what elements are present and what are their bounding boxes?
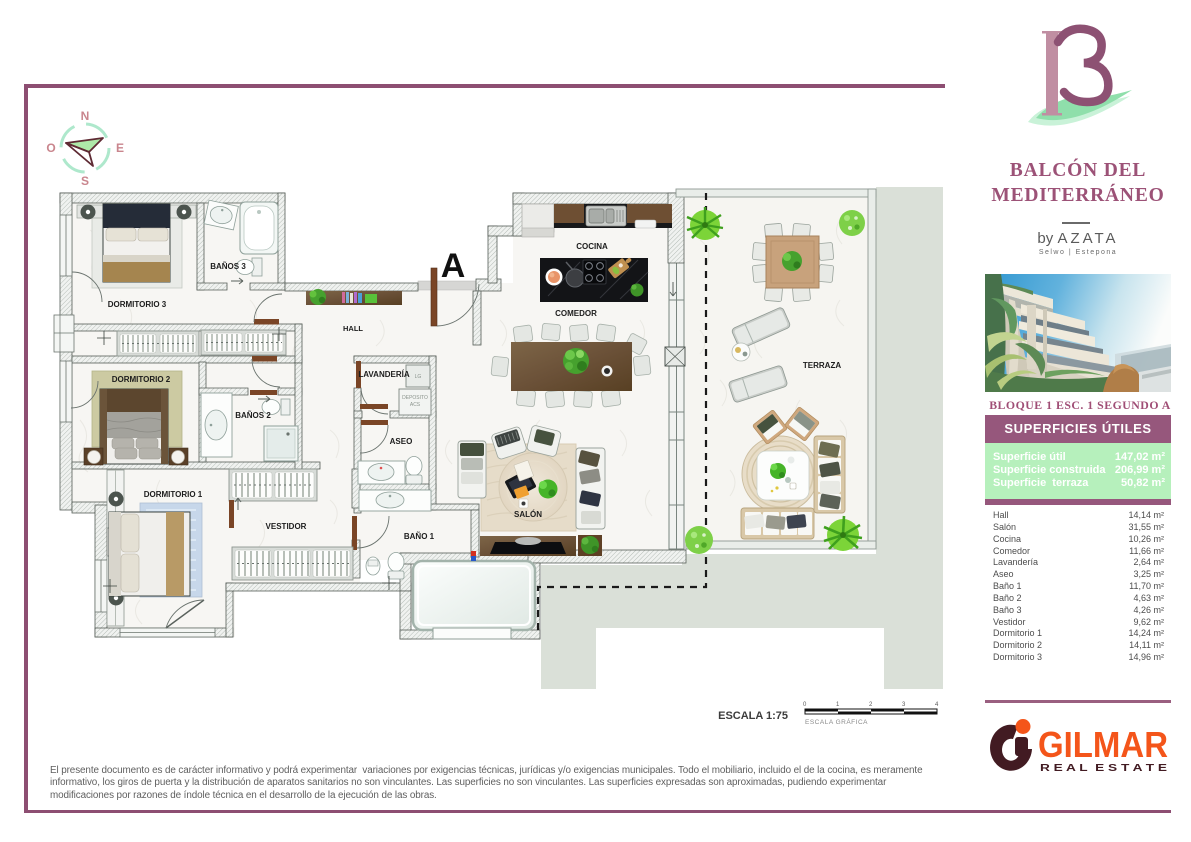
svg-text:N: N (81, 109, 90, 123)
svg-text:VESTIDOR: VESTIDOR (266, 522, 307, 531)
svg-text:COMEDOR: COMEDOR (555, 309, 597, 318)
svg-text:ACS: ACS (410, 402, 421, 408)
svg-text:2: 2 (869, 702, 873, 708)
svg-text:HALL: HALL (343, 324, 363, 333)
svg-text:GILMAR: GILMAR (1038, 724, 1168, 765)
svg-text:DEPOSITO: DEPOSITO (402, 395, 428, 401)
svg-text:BAÑOS 3: BAÑOS 3 (210, 262, 246, 271)
svg-text:1: 1 (836, 702, 840, 708)
svg-text:COCINA: COCINA (576, 242, 608, 251)
svg-text:DORMITORIO 3: DORMITORIO 3 (108, 300, 167, 309)
svg-text:4: 4 (935, 702, 939, 708)
svg-text:A: A (441, 247, 466, 285)
svg-text:DORMITORIO 2: DORMITORIO 2 (112, 375, 171, 384)
svg-text:E: E (116, 141, 124, 155)
svg-text:R E A L E S T A T E: R E A L E S T A T E (1040, 762, 1167, 774)
svg-text:TERRAZA: TERRAZA (803, 361, 841, 370)
svg-text:3: 3 (902, 702, 906, 708)
svg-text:SALÓN: SALÓN (514, 510, 542, 519)
svg-text:BAÑO 1: BAÑO 1 (404, 532, 435, 541)
svg-text:ESCALA GRÁFICA: ESCALA GRÁFICA (805, 717, 868, 726)
svg-text:ASEO: ASEO (390, 437, 413, 446)
svg-text:LG: LG (415, 374, 422, 380)
svg-text:O: O (46, 141, 55, 155)
svg-text:LAVANDERÍA: LAVANDERÍA (358, 370, 409, 379)
svg-text:0: 0 (803, 702, 807, 708)
svg-text:S: S (81, 174, 89, 188)
svg-text:BAÑOS 2: BAÑOS 2 (235, 411, 271, 420)
svg-text:DORMITORIO 1: DORMITORIO 1 (144, 490, 203, 499)
